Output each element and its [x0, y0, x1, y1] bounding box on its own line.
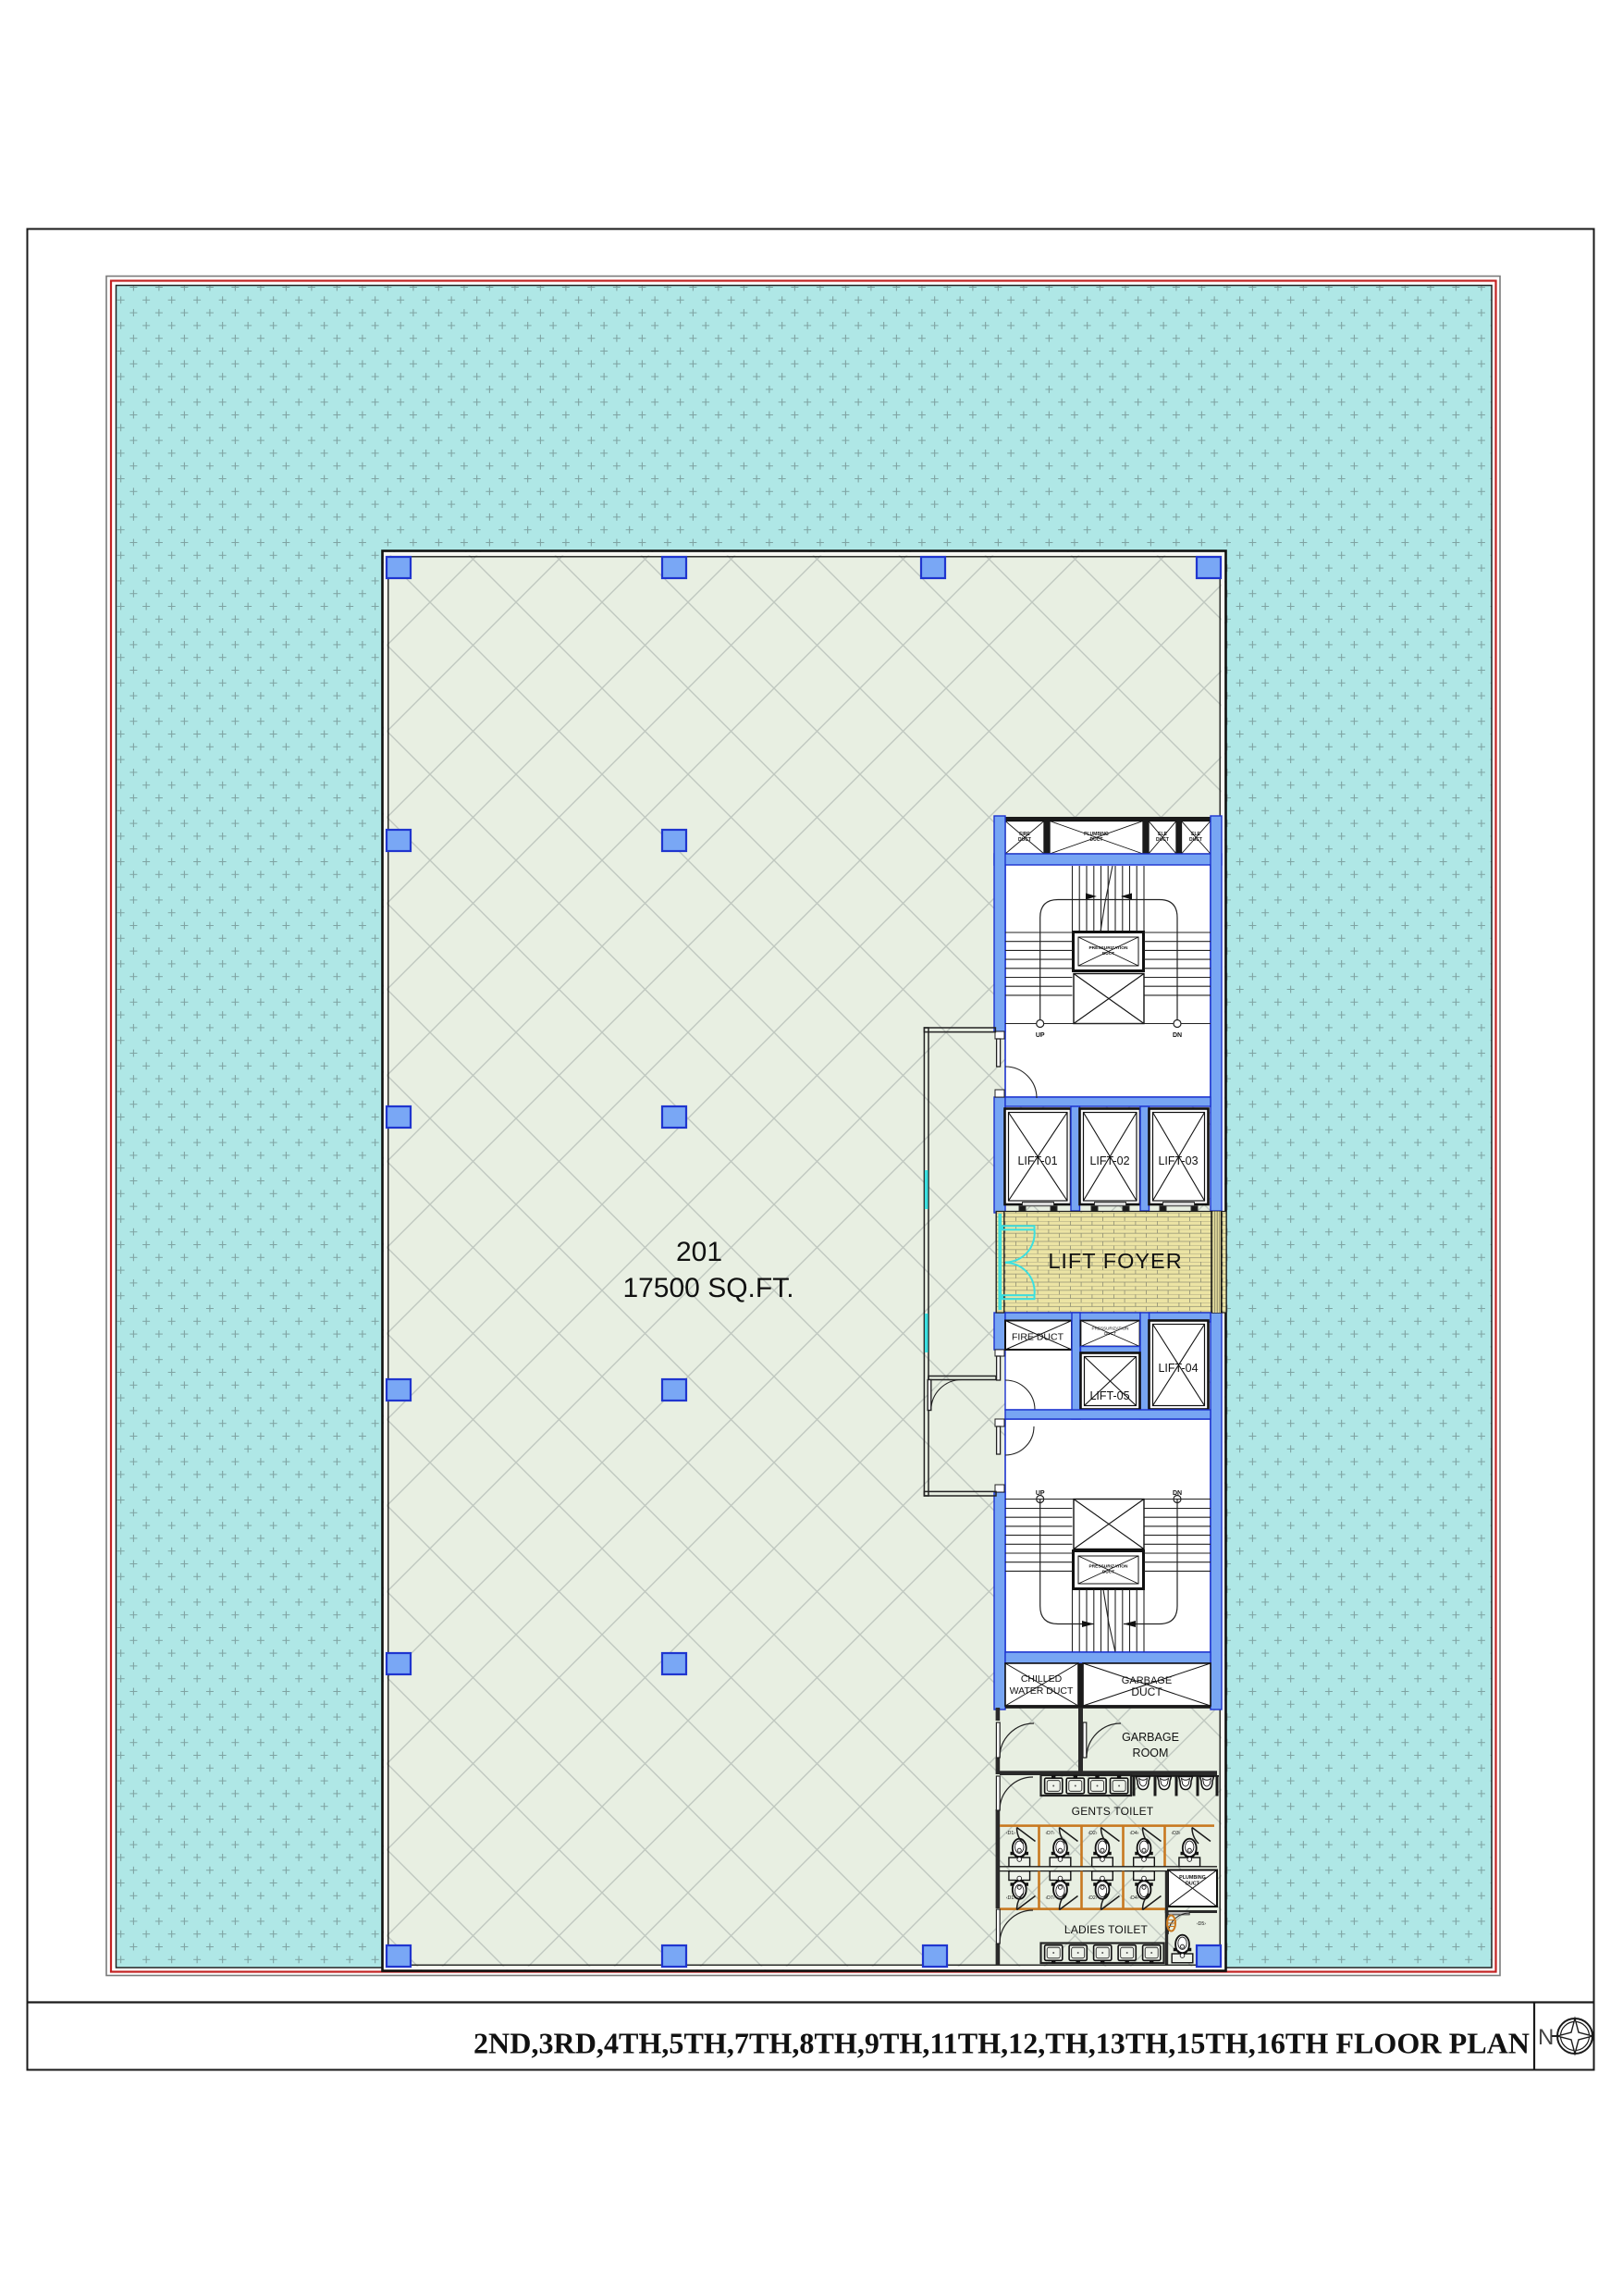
svg-text:PRESSURIZATION: PRESSURIZATION — [1092, 1327, 1129, 1331]
svg-text:‹D3›: ‹D3› — [1171, 1831, 1180, 1836]
svg-text:LIFT-01: LIFT-01 — [1017, 1154, 1057, 1167]
svg-text:ROOM: ROOM — [1133, 1747, 1169, 1759]
svg-text:LIFT-03: LIFT-03 — [1158, 1154, 1198, 1167]
svg-text:UP: UP — [1036, 1032, 1045, 1039]
svg-text:GENTS TOILET: GENTS TOILET — [1072, 1805, 1154, 1818]
svg-text:DUCT: DUCT — [1018, 837, 1031, 843]
svg-text:DUCT: DUCT — [1090, 837, 1103, 843]
svg-text:FIRE DUCT: FIRE DUCT — [1012, 1332, 1064, 1343]
svg-text:DUCT: DUCT — [1186, 1882, 1200, 1887]
svg-text:LIFT FOYER: LIFT FOYER — [1048, 1249, 1182, 1273]
svg-text:‹D2›: ‹D2› — [1088, 1895, 1097, 1901]
svg-text:PRESSURIZATION: PRESSURIZATION — [1088, 945, 1128, 951]
svg-text:‹D4›: ‹D4› — [1129, 1831, 1138, 1836]
svg-text:‹D1›: ‹D1› — [1006, 1895, 1015, 1901]
svg-text:DUCT: DUCT — [1156, 837, 1169, 843]
svg-text:2ND,3RD,4TH,5TH,7TH,8TH,9TH,11: 2ND,3RD,4TH,5TH,7TH,8TH,9TH,11TH,12,TH,1… — [473, 2027, 1530, 2060]
svg-text:DUCT: DUCT — [1189, 837, 1202, 843]
svg-text:WATER DUCT: WATER DUCT — [1010, 1685, 1074, 1697]
svg-text:‹D4›: ‹D4› — [1129, 1895, 1138, 1901]
svg-text:N: N — [1538, 2025, 1554, 2050]
svg-text:‹D5›: ‹D5› — [1197, 1921, 1206, 1927]
svg-text:LIFT-02: LIFT-02 — [1089, 1154, 1129, 1167]
svg-text:LIFT-04: LIFT-04 — [1158, 1362, 1198, 1375]
svg-text:DUCT: DUCT — [1104, 1331, 1116, 1336]
svg-text:‹D7›: ‹D7› — [1045, 1831, 1054, 1836]
svg-text:DUCT: DUCT — [1102, 1570, 1114, 1575]
svg-text:DUCT: DUCT — [1102, 951, 1114, 957]
svg-text:DUCT: DUCT — [1131, 1685, 1162, 1698]
svg-text:‹D2›: ‹D2› — [1088, 1831, 1097, 1836]
svg-text:LADIES TOILET: LADIES TOILET — [1064, 1923, 1149, 1936]
svg-text:‹D1›: ‹D1› — [1006, 1831, 1015, 1836]
svg-text:17500 SQ.FT.: 17500 SQ.FT. — [622, 1273, 793, 1303]
svg-text:CHILLED: CHILLED — [1021, 1673, 1063, 1685]
svg-text:201: 201 — [676, 1237, 722, 1267]
svg-text:GARBAGE: GARBAGE — [1122, 1731, 1179, 1744]
svg-text:PRESSURIZATION: PRESSURIZATION — [1088, 1564, 1128, 1570]
svg-text:DN: DN — [1173, 1032, 1182, 1039]
svg-text:‹D7›: ‹D7› — [1045, 1895, 1054, 1901]
svg-text:PLUMBING: PLUMBING — [1179, 1875, 1206, 1881]
svg-text:LIFT-05: LIFT-05 — [1089, 1389, 1129, 1402]
